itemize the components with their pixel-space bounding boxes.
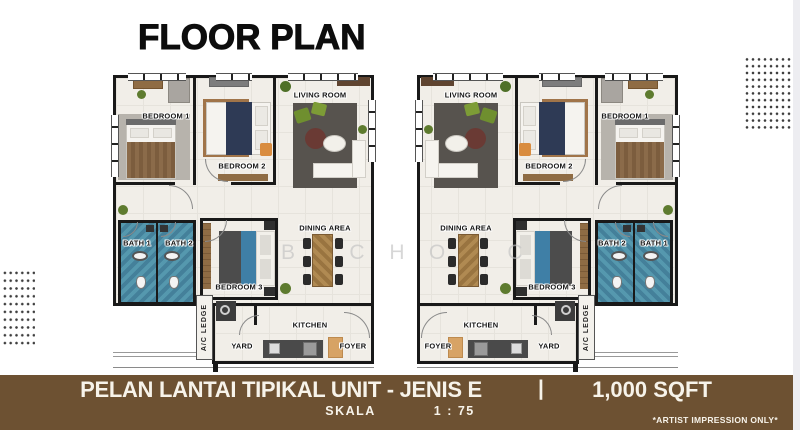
page-title: FLOOR PLAN xyxy=(138,18,365,58)
dining-table xyxy=(312,234,333,287)
chair xyxy=(480,238,488,249)
room-label-yard: YARD xyxy=(538,342,559,351)
floor-plan-right: A/C LEDGE BEDROOM 1 BEDROOM 2 LIVING ROO… xyxy=(417,75,678,373)
stove xyxy=(474,342,488,356)
blanket xyxy=(616,142,664,178)
nightstand xyxy=(264,287,275,296)
room-label-bedroom1: BEDROOM 1 xyxy=(142,112,189,121)
banner-disclaimer: *ARTIST IMPRESSION ONLY* xyxy=(653,415,778,425)
sink xyxy=(132,251,148,261)
wall xyxy=(515,75,518,185)
sofa xyxy=(425,140,439,178)
sink xyxy=(643,251,659,261)
toilet xyxy=(645,276,655,289)
blanket xyxy=(226,102,252,155)
chair xyxy=(335,238,343,249)
ac-ledge-label: A/C LEDGE xyxy=(201,304,208,351)
watermark-letter: H xyxy=(389,241,404,265)
room-label-foyer: FOYER xyxy=(340,342,367,351)
washing-machine xyxy=(555,301,575,321)
pillow xyxy=(153,128,172,138)
wall xyxy=(113,182,175,185)
blanket xyxy=(535,231,550,286)
banner-scale: SKALA 1 : 75 xyxy=(285,404,515,418)
floor-plan-left: A/C LEDGE BEDROOM 1 BEDROOM 2 LIVING ROO… xyxy=(113,75,374,373)
window xyxy=(368,100,376,162)
room-label-kitchen: KITCHEN xyxy=(464,321,499,330)
window xyxy=(672,115,680,177)
room-label-bedroom1: BEDROOM 1 xyxy=(601,112,648,121)
scale-label: SKALA xyxy=(325,404,376,418)
room-label-dining-area: DINING AREA xyxy=(299,224,351,233)
wall xyxy=(616,182,678,185)
plant-icon xyxy=(280,81,291,92)
sofa xyxy=(352,140,366,178)
window xyxy=(605,73,663,81)
pillow xyxy=(255,106,268,126)
plant-icon xyxy=(280,283,291,294)
stove xyxy=(303,342,317,356)
wall-tick xyxy=(573,364,578,372)
ac-ledge-label: A/C LEDGE xyxy=(583,304,590,351)
chair xyxy=(303,238,311,249)
watermark-letter: C xyxy=(507,241,522,265)
bath-divider-wall xyxy=(633,223,635,302)
room-label-bedroom2: BEDROOM 2 xyxy=(218,162,265,171)
bed xyxy=(550,231,572,286)
blanket xyxy=(539,102,565,155)
ottoman xyxy=(323,135,346,152)
window xyxy=(539,73,575,81)
rail-line xyxy=(113,356,196,357)
pillow xyxy=(642,128,661,138)
ottoman xyxy=(445,135,468,152)
sink xyxy=(611,251,627,261)
room-label-living-room: LIVING ROOM xyxy=(294,91,347,100)
sink xyxy=(164,251,180,261)
room-label-bedroom3: BEDROOM 3 xyxy=(215,283,262,292)
room-label-living-room: LIVING ROOM xyxy=(445,91,498,100)
banner-area: 1,000 SQFT xyxy=(556,377,748,403)
chair xyxy=(335,256,343,267)
rail-line xyxy=(595,352,678,353)
plant-icon xyxy=(118,205,128,215)
wall xyxy=(193,75,196,185)
dot-grid-right xyxy=(744,56,798,129)
chair xyxy=(448,274,456,285)
chair xyxy=(260,143,272,156)
room-label-bedroom3: BEDROOM 3 xyxy=(528,283,575,292)
room-label-bath1: BATH 1 xyxy=(123,239,151,248)
pillow xyxy=(523,106,536,126)
flyer-page: FLOOR PLAN xyxy=(0,0,800,430)
room-label-dining-area: DINING AREA xyxy=(440,224,492,233)
dining-table xyxy=(458,234,479,287)
wardrobe xyxy=(601,78,623,103)
nightstand xyxy=(264,221,275,230)
pillow xyxy=(260,259,271,279)
toilet xyxy=(612,276,622,289)
dot-grid-left xyxy=(2,269,35,348)
room-label-bath2: BATH 2 xyxy=(598,239,626,248)
chair xyxy=(303,256,311,267)
watermark-letter: B xyxy=(281,241,295,265)
toilet xyxy=(136,276,146,289)
wall xyxy=(231,182,276,185)
wall-tick xyxy=(213,364,218,372)
base-line xyxy=(113,367,374,368)
plant-icon xyxy=(500,81,511,92)
plant-icon xyxy=(663,205,673,215)
base-line xyxy=(417,367,678,368)
kitchen-sink xyxy=(511,343,522,354)
plant-icon xyxy=(645,90,654,99)
bed xyxy=(219,231,241,286)
room-label-foyer: FOYER xyxy=(425,342,452,351)
scale-value: 1 : 75 xyxy=(434,404,475,418)
nightstand xyxy=(516,287,527,296)
window xyxy=(415,100,423,162)
shower-fixture xyxy=(146,225,154,232)
room-label-yard: YARD xyxy=(231,342,252,351)
banner-separator: | xyxy=(538,377,544,401)
plant-icon xyxy=(500,283,511,294)
watermark-letter: C xyxy=(349,241,364,265)
window xyxy=(111,115,119,177)
chair xyxy=(335,274,343,285)
chair xyxy=(448,238,456,249)
rail-line xyxy=(113,352,196,353)
plant-icon xyxy=(358,125,367,134)
blanket xyxy=(127,142,175,178)
ac-ledge: A/C LEDGE xyxy=(578,295,595,360)
nightstand xyxy=(516,221,527,230)
room-label-bedroom2: BEDROOM 2 xyxy=(525,162,572,171)
pillow xyxy=(619,128,638,138)
window xyxy=(433,73,503,81)
banner-title: PELAN LANTAI TIPIKAL UNIT - JENIS E xyxy=(0,377,562,403)
coffee-table xyxy=(465,128,486,149)
chair xyxy=(303,274,311,285)
room-label-kitchen: KITCHEN xyxy=(293,321,328,330)
room-label-bath2: BATH 2 xyxy=(165,239,193,248)
chair xyxy=(480,256,488,267)
chair xyxy=(519,143,531,156)
bath-divider-wall xyxy=(156,223,158,302)
window xyxy=(128,73,186,81)
wall xyxy=(515,182,560,185)
shower-fixture xyxy=(637,225,645,232)
wall xyxy=(273,75,276,185)
kitchen-sink xyxy=(269,343,280,354)
watermark-letter: O xyxy=(429,241,445,265)
wall xyxy=(595,75,598,185)
plant-icon xyxy=(137,90,146,99)
chair xyxy=(448,256,456,267)
rail-line xyxy=(595,356,678,357)
chair xyxy=(480,274,488,285)
room-label-bath1: BATH 1 xyxy=(640,239,668,248)
toilet xyxy=(169,276,179,289)
info-banner: PELAN LANTAI TIPIKAL UNIT - JENIS E | 1,… xyxy=(0,375,793,430)
wardrobe xyxy=(168,78,190,103)
plant-icon xyxy=(424,125,433,134)
washing-machine xyxy=(216,301,236,321)
washer-drum-icon xyxy=(220,305,230,315)
ac-ledge: A/C LEDGE xyxy=(196,295,213,360)
blanket xyxy=(241,231,256,286)
page-edge-strip xyxy=(793,0,800,430)
window xyxy=(216,73,252,81)
window xyxy=(288,73,358,81)
washer-drum-icon xyxy=(561,305,571,315)
pillow xyxy=(260,235,271,255)
pillow xyxy=(130,128,149,138)
